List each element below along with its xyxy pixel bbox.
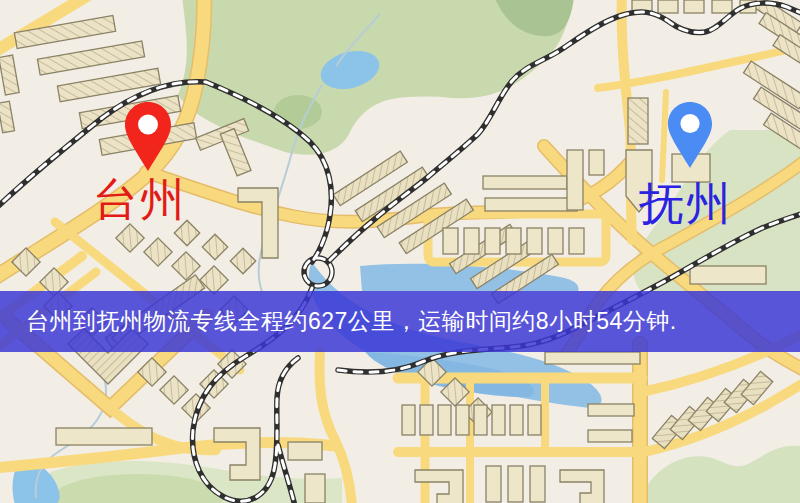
destination-pin	[667, 100, 713, 170]
destination-city-label: 抚州	[639, 181, 733, 226]
origin-city-label: 台州	[93, 177, 187, 222]
logistics-route-map: 台州 抚州 台州到抚州物流专线全程约627公里，运输时间约8小时54分钟.	[0, 0, 800, 503]
route-info-text: 台州到抚州物流专线全程约627公里，运输时间约8小时54分钟.	[0, 308, 677, 336]
map-background	[0, 0, 800, 503]
origin-pin	[124, 101, 172, 172]
map-pin-icon	[124, 101, 172, 172]
map-pin-icon	[667, 100, 713, 170]
route-info-banner: 台州到抚州物流专线全程约627公里，运输时间约8小时54分钟.	[0, 291, 800, 352]
